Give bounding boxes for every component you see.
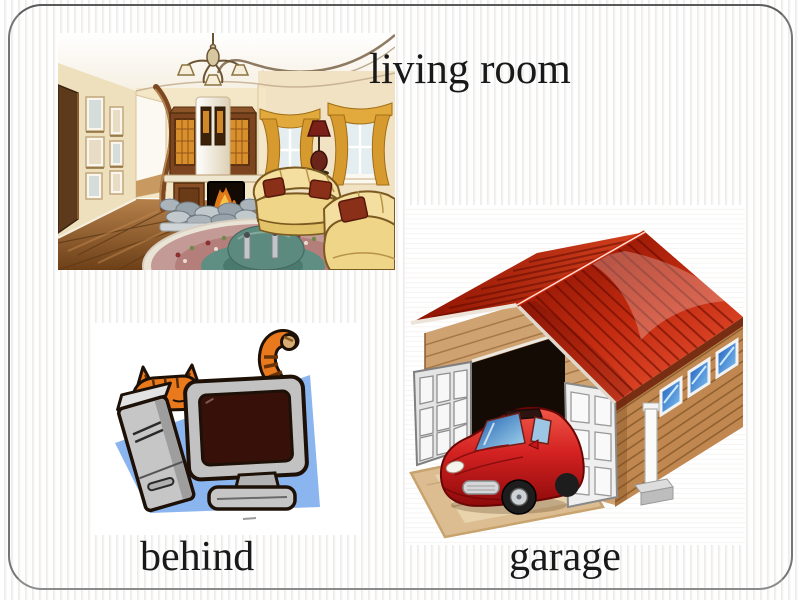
living-room-picture [58, 33, 395, 270]
monitor [185, 376, 308, 480]
garage-illustration [405, 205, 745, 545]
cat-behind-computer-illustration [93, 323, 357, 535]
living-room-illustration [58, 33, 395, 270]
behind-label: behind [140, 536, 254, 578]
window-right [328, 103, 392, 185]
behind-picture [93, 323, 357, 535]
garage-picture [405, 205, 745, 545]
hall-door [58, 85, 78, 233]
living-room-label: living room [369, 48, 571, 91]
sofa-right [324, 191, 395, 270]
garage-label: garage [509, 536, 621, 578]
